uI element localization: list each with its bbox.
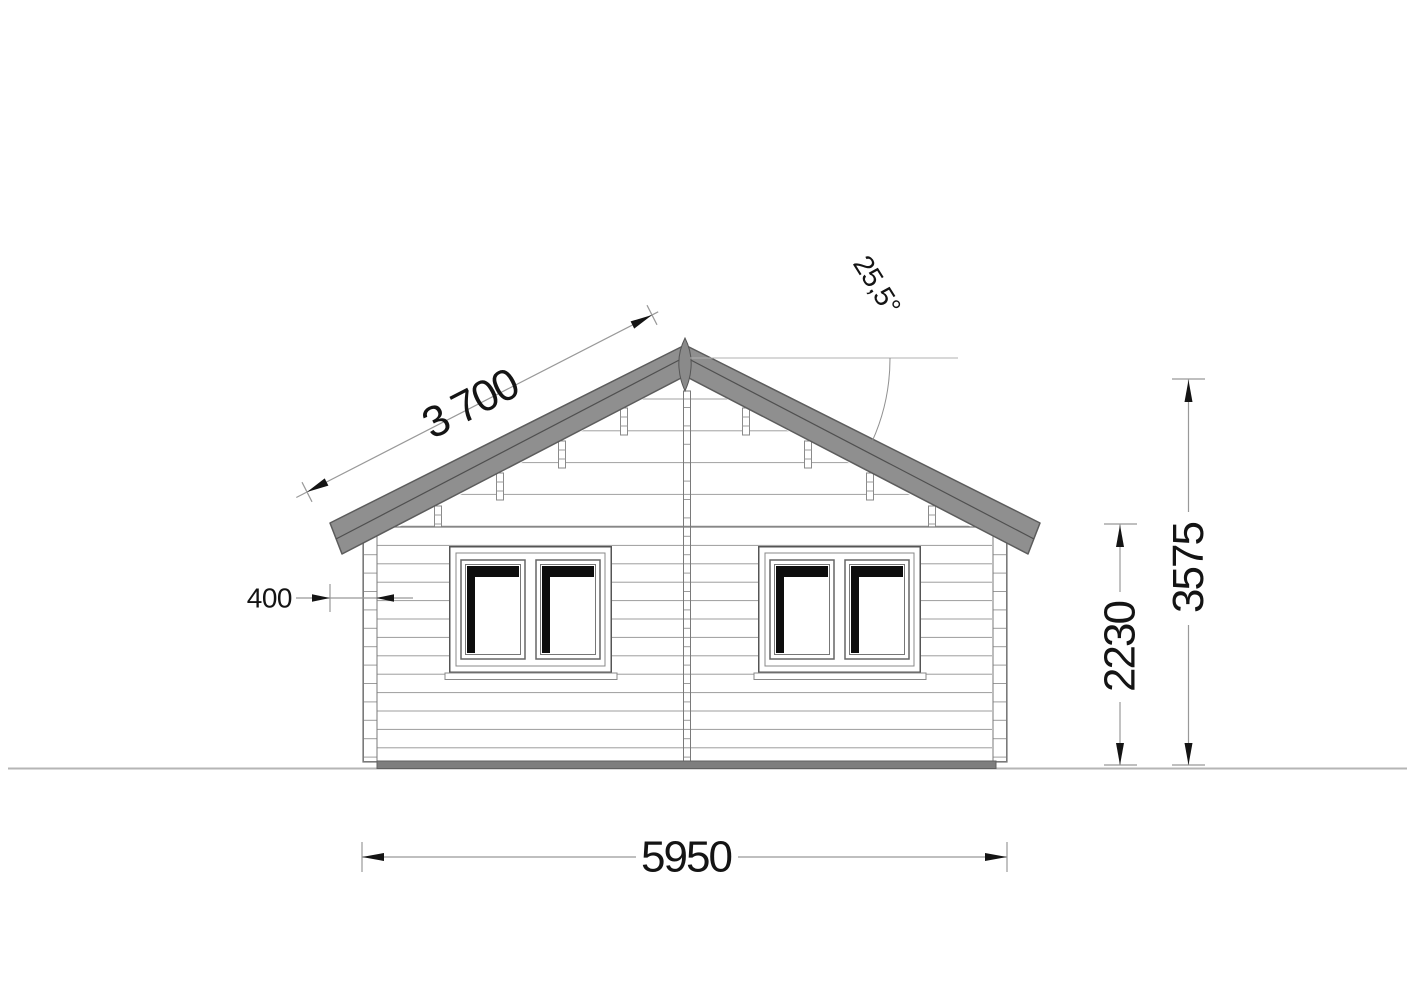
house-front-elevation: 3 700 25,5° 400 2230 3575 — [0, 0, 1415, 1000]
center-joint-column — [684, 391, 691, 762]
dim-overall-width: 5950 — [362, 833, 1007, 882]
window-right-sill — [754, 673, 926, 680]
gable-batten — [743, 408, 750, 435]
dim-label-overhang: 400 — [247, 583, 292, 614]
window-left-sill — [445, 673, 617, 680]
window-left — [450, 547, 612, 673]
dim-label-overall-width: 5950 — [641, 833, 731, 882]
dim-label-roof-angle: 25,5° — [847, 250, 907, 320]
dim-wall-height: 2230 — [1096, 524, 1145, 765]
gable-batten — [621, 408, 628, 435]
dim-total-height: 3575 — [1164, 379, 1213, 765]
base-strip — [377, 761, 996, 769]
dim-label-wall-height: 2230 — [1096, 602, 1145, 692]
gable-batten — [805, 441, 812, 468]
corner-logs-left — [364, 528, 378, 762]
elevation-drawing-page: 3 700 25,5° 400 2230 3575 — [0, 0, 1415, 1000]
gable-batten — [867, 473, 874, 500]
gable-batten — [559, 441, 566, 468]
gable-batten — [497, 473, 504, 500]
dim-label-total-height: 3575 — [1164, 523, 1213, 613]
corner-logs-right — [993, 528, 1007, 762]
window-right — [759, 547, 921, 673]
